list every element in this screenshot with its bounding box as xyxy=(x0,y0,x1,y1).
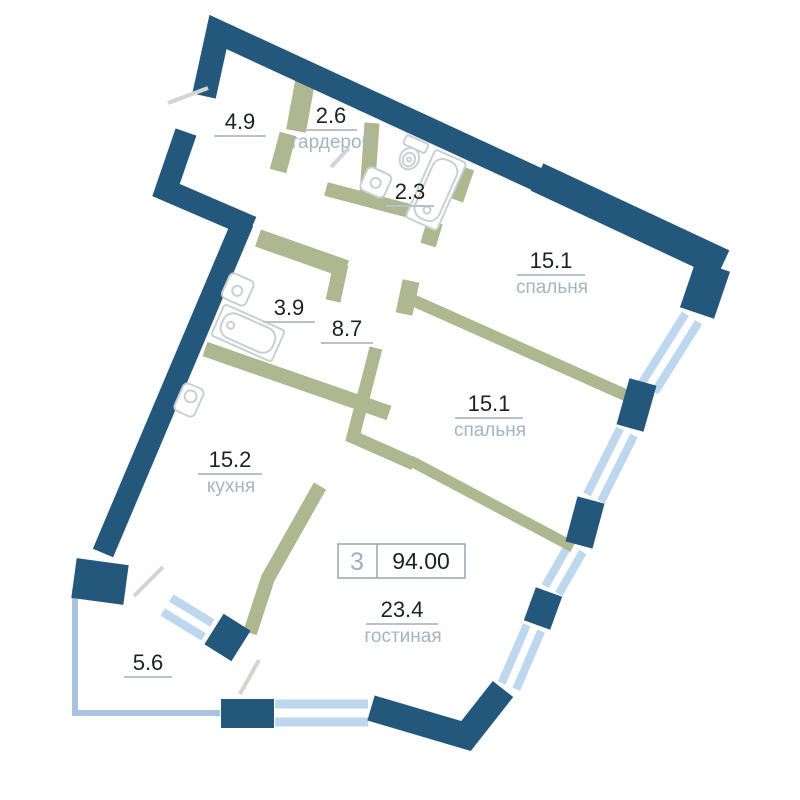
windows xyxy=(167,318,692,713)
room-label-balcony: 5.6 xyxy=(124,650,172,677)
partition xyxy=(408,298,632,398)
room-label-hallway: 8.7 xyxy=(321,316,373,343)
wall-left xyxy=(103,222,243,553)
window-pier xyxy=(537,592,549,625)
room-label-entry-hall: 4.9 xyxy=(214,109,266,136)
partition xyxy=(258,238,346,269)
balcony-pier xyxy=(214,629,241,646)
badge-rooms-count: 3 xyxy=(350,548,364,576)
balcony-door-line xyxy=(134,567,163,596)
window-gap xyxy=(648,318,692,388)
room-label-bathroom: 3.9 xyxy=(263,295,315,322)
window-pier xyxy=(630,382,643,428)
floor-plan-canvas: 4.9 2.6 гардероб 2.3 15.1 спальня 3.9 8.… xyxy=(0,0,800,800)
room-label-bedroom-1: 15.1 спальня xyxy=(516,248,588,298)
toilet-icon xyxy=(394,135,429,174)
partition xyxy=(278,134,288,171)
partition xyxy=(296,82,305,131)
room-label-living-room: 23.4 гостиная xyxy=(364,597,441,647)
room-name: спальня xyxy=(454,420,526,441)
room-area: 4.9 xyxy=(225,109,256,134)
badge-total-area: 94.00 xyxy=(392,548,450,574)
room-area: 15.1 xyxy=(530,248,573,273)
area-badge: 3 94.00 xyxy=(338,544,465,578)
room-area: 5.6 xyxy=(133,650,164,675)
room-name: кухня xyxy=(207,476,255,497)
room-area: 15.1 xyxy=(468,391,511,416)
room-name: спальня xyxy=(516,277,588,298)
wall-bottom-v xyxy=(371,689,503,736)
partition xyxy=(250,486,320,633)
window-pier xyxy=(579,500,591,545)
room-name: гостиная xyxy=(364,626,441,647)
room-name: гардероб xyxy=(292,132,373,153)
wall-bottom-pier xyxy=(221,699,274,728)
room-area: 3.9 xyxy=(274,295,305,320)
room-area: 2.6 xyxy=(316,103,347,128)
wall-corner-pier xyxy=(697,266,713,313)
room-label-kitchen: 15.2 кухня xyxy=(198,447,262,497)
room-area: 8.7 xyxy=(332,316,363,341)
room-area: 15.2 xyxy=(209,447,252,472)
wall-left-end-block xyxy=(74,578,126,585)
room-area: 2.3 xyxy=(395,179,426,204)
partition xyxy=(411,461,573,547)
room-area: 23.4 xyxy=(381,597,424,622)
partition xyxy=(333,264,341,301)
wall-left-step xyxy=(166,132,252,227)
room-label-bedroom-2: 15.1 спальня xyxy=(454,391,526,441)
floor-plan-page: 4.9 2.6 гардероб 2.3 15.1 спальня 3.9 8.… xyxy=(0,0,800,800)
balcony-door-line xyxy=(240,660,259,694)
